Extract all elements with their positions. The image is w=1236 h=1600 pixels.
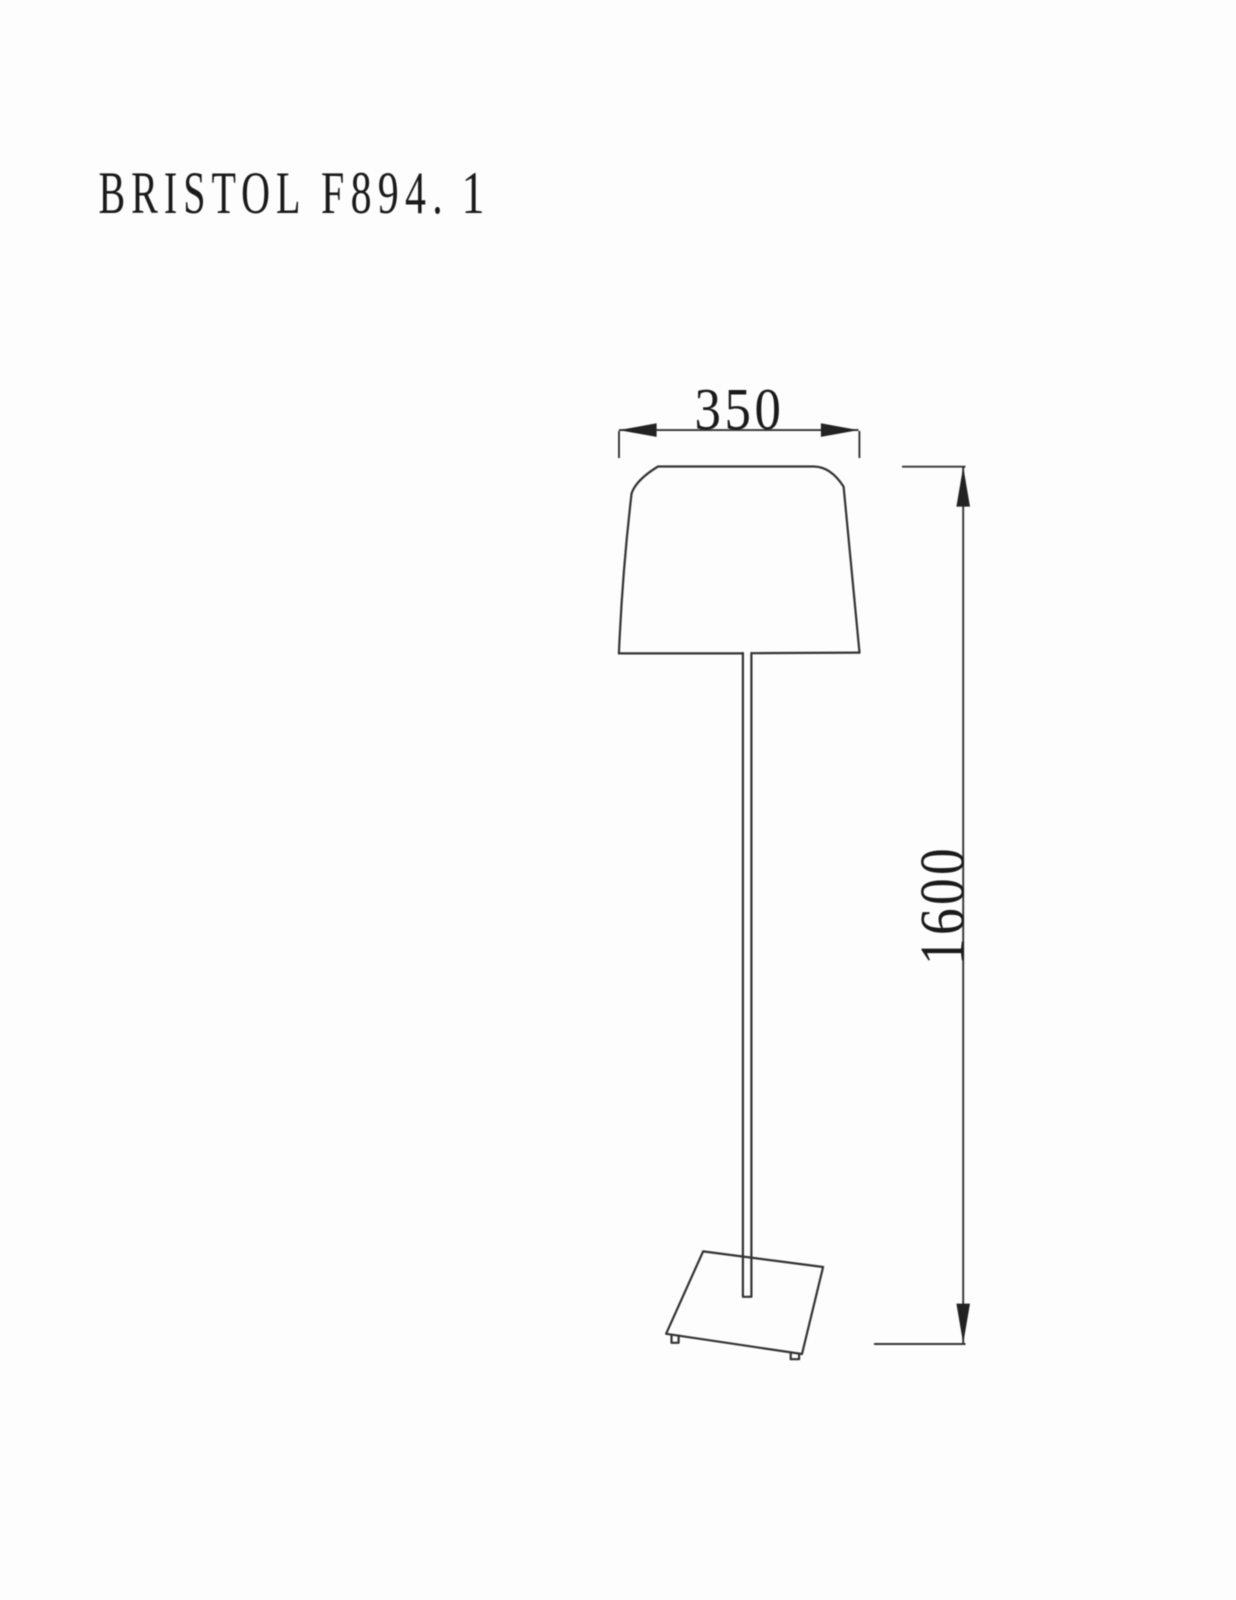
svg-text:BRISTOLF894.1: BRISTOLF894.1 xyxy=(99,160,492,226)
svg-text:350: 350 xyxy=(695,376,785,442)
svg-text:1600: 1600 xyxy=(907,845,978,965)
